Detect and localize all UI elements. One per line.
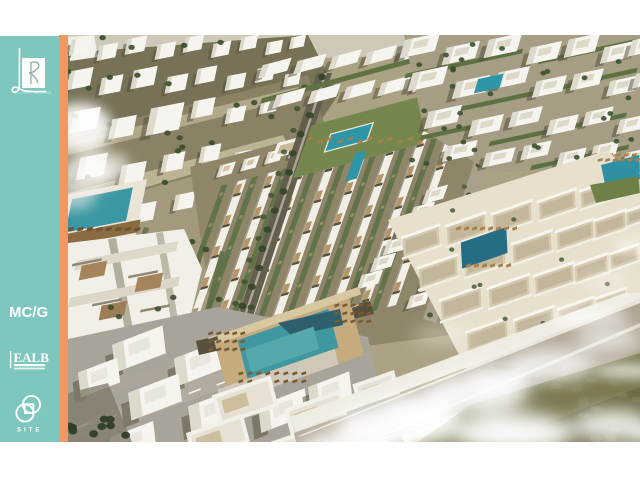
svg-text:SITE: SITE: [17, 428, 42, 434]
svg-text:EALB: EALB: [14, 350, 50, 365]
svg-text:LUXURY RESIDENCE: LUXURY RESIDENCE: [19, 91, 52, 95]
